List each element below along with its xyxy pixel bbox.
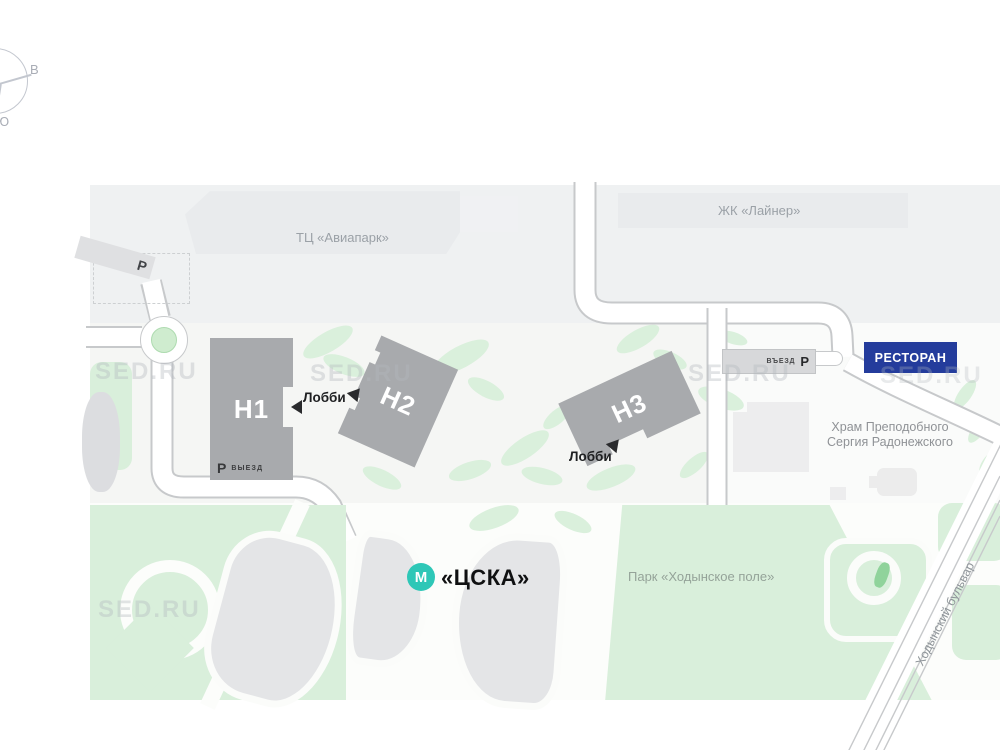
watermark: SED.RU (95, 358, 198, 386)
church-grounds (733, 412, 809, 472)
entrance-driveway (816, 351, 843, 366)
church-label-line2: Сергия Радонежского (820, 435, 960, 450)
watermark: SED.RU (688, 360, 791, 388)
church-building-annex (869, 476, 878, 488)
parking-exit-symbol: Р (217, 460, 226, 476)
church-label: Храм Преподобного Сергия Радонежского (820, 420, 960, 450)
parking-entrance-symbol: Р (800, 354, 809, 369)
metro-symbol: М (415, 569, 428, 586)
watermark: SED.RU (880, 362, 983, 390)
compass: В Ю (0, 0, 120, 160)
tower-h1: Н1 Р ВЫЕЗД (210, 338, 293, 480)
tower-h1-label: Н1 (234, 394, 269, 425)
church-label-line1: Храм Преподобного (820, 420, 960, 435)
church-grounds (747, 402, 809, 413)
watermark: SED.RU (310, 360, 413, 388)
compass-south-label: Ю (0, 114, 9, 129)
watermark: SED.RU (98, 596, 201, 624)
small-structure (830, 487, 846, 500)
parking-exit-sign: Р ВЫЕЗД (217, 460, 263, 476)
parking-exit-label: ВЫЕЗД (231, 465, 263, 472)
metro-icon: М (407, 563, 435, 591)
tower-h3-label: Н3 (607, 387, 652, 430)
lobby-label-2: Лобби (569, 449, 612, 464)
metro-station-label: «ЦСКА» (441, 565, 530, 591)
park-label: Парк «Ходынское поле» (628, 569, 774, 584)
site-map: { "title": "Site plan map", "compass": {… (0, 0, 1000, 750)
lobby-label-1: Лобби (303, 390, 346, 405)
church-building (877, 468, 917, 496)
lobby-arrow-left-icon (291, 400, 302, 414)
compass-east-label: В (30, 62, 39, 77)
